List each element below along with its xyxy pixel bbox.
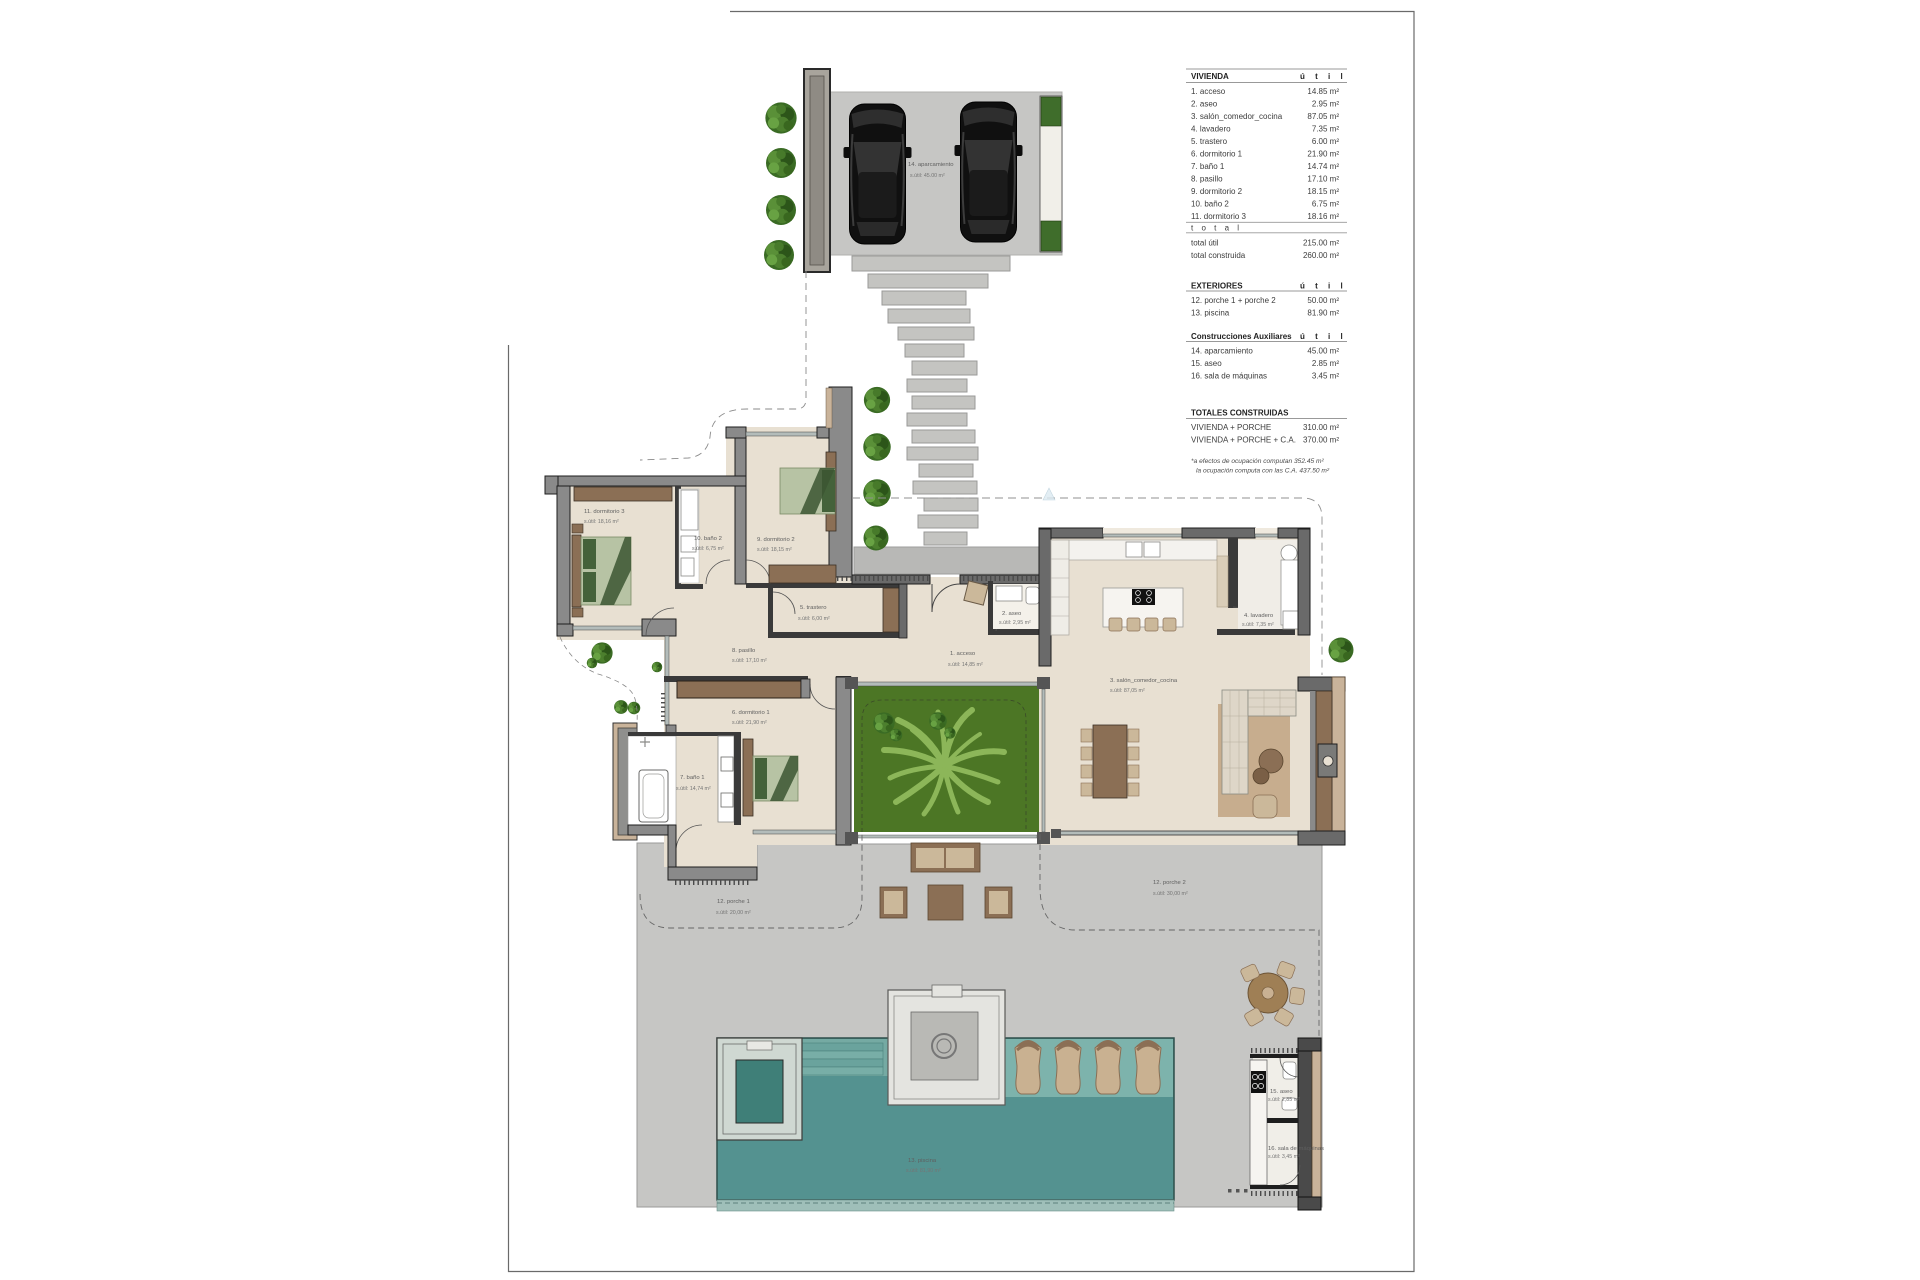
svg-text:21.90 m²: 21.90 m² (1307, 150, 1339, 159)
svg-text:s.útil: 17,10 m²: s.útil: 17,10 m² (732, 658, 767, 664)
svg-text:310.00 m²: 310.00 m² (1303, 423, 1339, 432)
svg-text:ú t i l: ú t i l (1300, 72, 1347, 81)
svg-text:VIVIENDA + PORCHE + C.A.: VIVIENDA + PORCHE + C.A. (1191, 436, 1296, 445)
svg-text:ú t i l: ú t i l (1300, 282, 1347, 291)
svg-text:s.útil: 6,75 m²: s.útil: 6,75 m² (692, 546, 724, 552)
svg-text:2. aseo: 2. aseo (1002, 611, 1022, 617)
svg-text:18.16 m²: 18.16 m² (1307, 212, 1339, 221)
svg-text:16. sala de máquinas: 16. sala de máquinas (1268, 1146, 1324, 1152)
svg-text:s.útil: 30,00 m²: s.útil: 30,00 m² (1153, 891, 1188, 897)
svg-text:s.útil: 7,35 m²: s.útil: 7,35 m² (1242, 622, 1274, 628)
svg-text:s.útil: 3,45 m²: s.útil: 3,45 m² (1268, 1154, 1300, 1160)
svg-text:3.45 m²: 3.45 m² (1312, 372, 1339, 381)
svg-text:14. aparcamiento: 14. aparcamiento (908, 162, 954, 168)
svg-text:7. baño 1: 7. baño 1 (680, 775, 705, 781)
svg-text:s.útil: 14,85 m²: s.útil: 14,85 m² (948, 662, 983, 668)
svg-text:3. salón_comedor_cocina: 3. salón_comedor_cocina (1191, 112, 1283, 121)
svg-text:370.00 m²: 370.00 m² (1303, 436, 1339, 445)
svg-text:5. trastero: 5. trastero (800, 605, 827, 611)
svg-text:t o t a l: t o t a l (1191, 224, 1242, 233)
svg-text:15. aseo: 15. aseo (1270, 1089, 1293, 1095)
svg-text:2.95 m²: 2.95 m² (1312, 100, 1339, 109)
svg-text:12. porche 1 + porche 2: 12. porche 1 + porche 2 (1191, 296, 1276, 305)
svg-text:45.00 m²: 45.00 m² (1307, 347, 1339, 356)
svg-text:s.útil: 45.00 m²: s.útil: 45.00 m² (910, 173, 945, 179)
svg-text:s.útil: 14,74 m²: s.útil: 14,74 m² (676, 786, 711, 792)
svg-text:11. dormitorio 3: 11. dormitorio 3 (584, 509, 625, 515)
svg-text:s.útil: 2,95 m²: s.útil: 2,95 m² (999, 620, 1031, 626)
svg-text:6.75 m²: 6.75 m² (1312, 200, 1339, 209)
svg-text:s.útil: 2,85 m²: s.útil: 2,85 m² (1268, 1097, 1300, 1103)
svg-text:EXTERIORES: EXTERIORES (1191, 282, 1243, 291)
svg-text:6.00 m²: 6.00 m² (1312, 137, 1339, 146)
svg-text:7.35 m²: 7.35 m² (1312, 125, 1339, 134)
svg-text:s.útil: 18,16 m²: s.útil: 18,16 m² (584, 519, 619, 525)
svg-text:la ocupación computa con las C: la ocupación computa con las C.A. 437.50… (1196, 468, 1330, 475)
svg-text:5. trastero: 5. trastero (1191, 137, 1228, 146)
svg-text:11. dormitorio 3: 11. dormitorio 3 (1191, 212, 1247, 221)
svg-text:87.05 m²: 87.05 m² (1307, 112, 1339, 121)
svg-text:4. lavadero: 4. lavadero (1191, 125, 1231, 134)
svg-text:81.90 m²: 81.90 m² (1307, 309, 1339, 318)
svg-text:2. aseo: 2. aseo (1191, 100, 1218, 109)
svg-text:s.útil: 18,15 m²: s.útil: 18,15 m² (757, 547, 792, 553)
svg-text:10. baño 2: 10. baño 2 (1191, 200, 1229, 209)
svg-text:14.74 m²: 14.74 m² (1307, 162, 1339, 171)
svg-text:VIVIENDA: VIVIENDA (1191, 72, 1229, 81)
svg-text:1. acceso: 1. acceso (1191, 87, 1226, 96)
svg-text:16. sala de máquinas: 16. sala de máquinas (1191, 372, 1267, 381)
svg-text:9. dormitorio 2: 9. dormitorio 2 (1191, 187, 1243, 196)
svg-text:18.15 m²: 18.15 m² (1307, 187, 1339, 196)
svg-text:*a efectos de ocupación comput: *a efectos de ocupación computan 352.45 … (1191, 458, 1324, 465)
svg-text:3. salón_comedor_cocina: 3. salón_comedor_cocina (1110, 678, 1178, 684)
svg-text:215.00 m²: 215.00 m² (1303, 239, 1339, 248)
svg-text:6. dormitorio 1: 6. dormitorio 1 (732, 710, 770, 716)
svg-text:14. aparcamiento: 14. aparcamiento (1191, 347, 1253, 356)
svg-text:17.10 m²: 17.10 m² (1307, 175, 1339, 184)
svg-text:s.útil: 6,00 m²: s.útil: 6,00 m² (798, 616, 830, 622)
svg-text:TOTALES CONSTRUIDAS: TOTALES CONSTRUIDAS (1191, 409, 1289, 418)
svg-text:13. piscina: 13. piscina (1191, 309, 1230, 318)
svg-text:8. pasillo: 8. pasillo (732, 648, 756, 654)
svg-text:9. dormitorio 2: 9. dormitorio 2 (757, 537, 795, 543)
svg-text:s.útil: 21,90 m²: s.útil: 21,90 m² (732, 720, 767, 726)
svg-text:total construida: total construida (1191, 251, 1246, 260)
svg-text:7. baño 1: 7. baño 1 (1191, 162, 1225, 171)
svg-text:260.00 m²: 260.00 m² (1303, 251, 1339, 260)
svg-text:s.útil: 81,90 m²: s.útil: 81,90 m² (906, 1168, 941, 1174)
svg-text:2.85 m²: 2.85 m² (1312, 359, 1339, 368)
svg-text:1. acceso: 1. acceso (950, 651, 976, 657)
svg-text:12. porche 2: 12. porche 2 (1153, 880, 1186, 886)
svg-text:s.útil: 87,05 m²: s.útil: 87,05 m² (1110, 688, 1145, 694)
svg-text:15. aseo: 15. aseo (1191, 359, 1222, 368)
svg-text:50.00 m²: 50.00 m² (1307, 296, 1339, 305)
svg-text:8. pasillo: 8. pasillo (1191, 175, 1223, 184)
svg-text:VIVIENDA + PORCHE: VIVIENDA + PORCHE (1191, 423, 1271, 432)
svg-text:6. dormitorio 1: 6. dormitorio 1 (1191, 150, 1243, 159)
svg-text:total útil: total útil (1191, 239, 1219, 248)
svg-text:12. porche 1: 12. porche 1 (717, 899, 750, 905)
svg-text:Construcciones Auxiliares: Construcciones Auxiliares (1191, 332, 1292, 341)
svg-text:ú t i l: ú t i l (1300, 332, 1347, 341)
svg-text:13. piscina: 13. piscina (908, 1158, 937, 1164)
svg-text:s.útil: 20,00 m²: s.útil: 20,00 m² (716, 910, 751, 916)
svg-text:4. lavadero: 4. lavadero (1244, 613, 1274, 619)
svg-text:14.85 m²: 14.85 m² (1307, 87, 1339, 96)
svg-text:10. baño 2: 10. baño 2 (694, 536, 722, 542)
